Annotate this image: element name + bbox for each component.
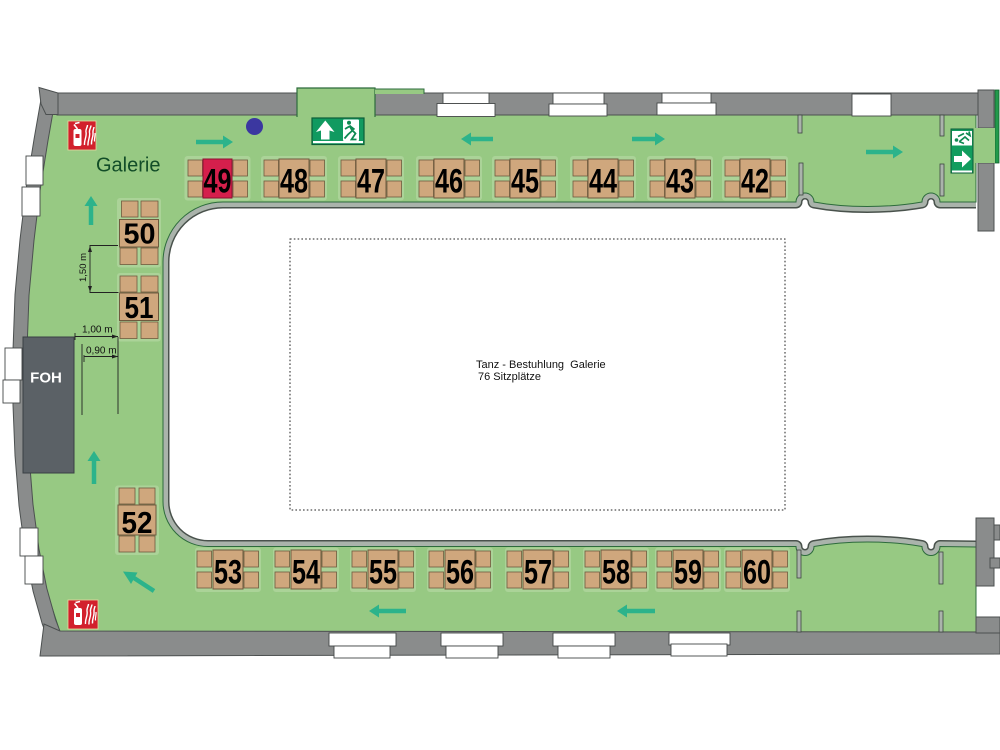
svg-text:76 Sitzplätze: 76 Sitzplätze xyxy=(478,371,541,383)
svg-text:1,00 m: 1,00 m xyxy=(82,325,113,336)
svg-text:52: 52 xyxy=(122,505,153,540)
svg-text:53: 53 xyxy=(214,554,242,592)
svg-text:56: 56 xyxy=(446,554,474,592)
svg-text:0,90 m: 0,90 m xyxy=(86,346,117,357)
svg-text:43: 43 xyxy=(666,163,694,201)
svg-text:48: 48 xyxy=(280,163,308,201)
svg-text:1,50 m: 1,50 m xyxy=(78,253,89,282)
svg-text:46: 46 xyxy=(435,163,463,201)
svg-text:45: 45 xyxy=(511,163,539,201)
svg-text:60: 60 xyxy=(743,554,771,592)
svg-text:57: 57 xyxy=(524,554,552,592)
svg-text:44: 44 xyxy=(589,163,617,201)
svg-text:58: 58 xyxy=(602,554,630,592)
svg-text:59: 59 xyxy=(674,554,702,592)
svg-text:Galerie: Galerie xyxy=(96,155,160,177)
svg-text:42: 42 xyxy=(741,163,769,201)
svg-text:55: 55 xyxy=(369,554,397,592)
svg-text:54: 54 xyxy=(292,554,320,592)
svg-text:50: 50 xyxy=(124,219,156,251)
svg-text:Tanz - Bestuhlung Galerie: Tanz - Bestuhlung Galerie xyxy=(476,359,606,371)
svg-text:FOH: FOH xyxy=(30,370,62,387)
svg-text:47: 47 xyxy=(357,163,385,201)
svg-text:49: 49 xyxy=(204,163,232,201)
svg-text:51: 51 xyxy=(125,290,154,325)
